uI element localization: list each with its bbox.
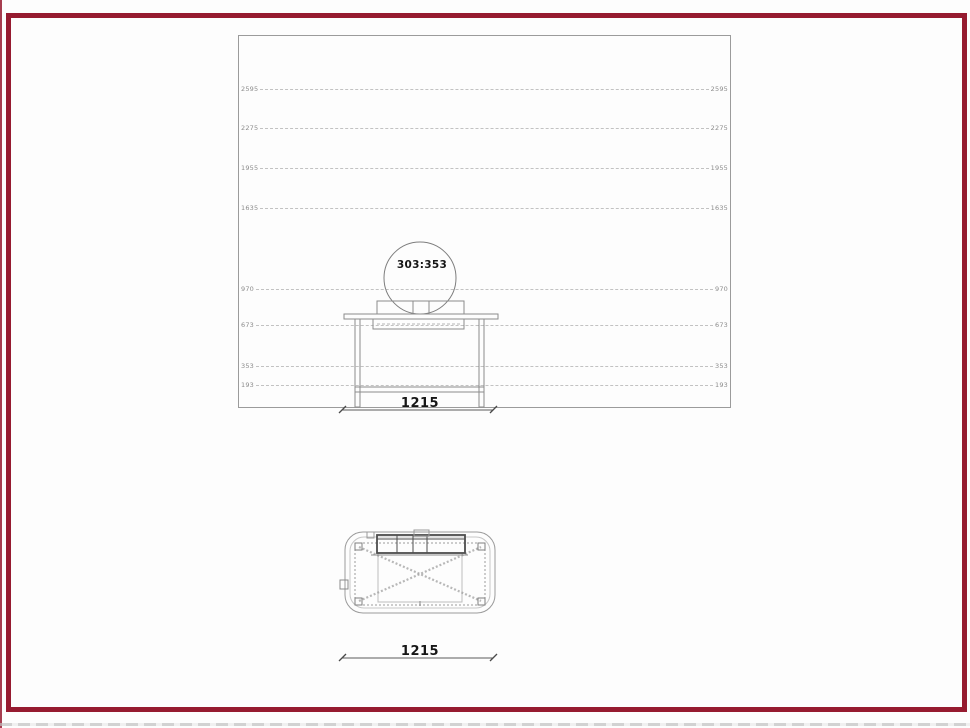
countertop-slab [344,314,498,319]
drawer-box-plan [377,535,465,553]
drawing-sheet: 2595 2595 2275 2275 1955 1955 1635 1635 … [0,0,970,728]
countertop-plan-outline [345,532,495,613]
plan-width-dimension: 1215 [339,644,497,661]
drawer-box-outline [377,535,465,553]
leg-block [355,598,362,605]
basin-deck-box [377,301,464,314]
elevation-width-label: 1215 [401,396,439,411]
leg-block [355,543,362,550]
plan-width-label: 1215 [401,644,439,659]
apron-inner-edge [378,553,462,602]
countertop-inner-edge [350,537,490,608]
elevation-width-dimension: 1215 [339,396,497,413]
leg-block [478,543,485,550]
washstand-plan [340,530,495,613]
basin-waste-box [413,301,429,314]
washstand-cad-drawing: 303:353 1215 [0,0,970,728]
vessel-basin-circle [384,242,456,314]
side-clip [340,580,348,589]
bottom-stretcher [355,387,484,392]
leg-block [478,598,485,605]
left-leg [355,319,360,407]
scan-artifact-line [0,723,970,726]
basin-dimension-label: 303:353 [397,259,447,271]
right-leg [479,319,484,407]
